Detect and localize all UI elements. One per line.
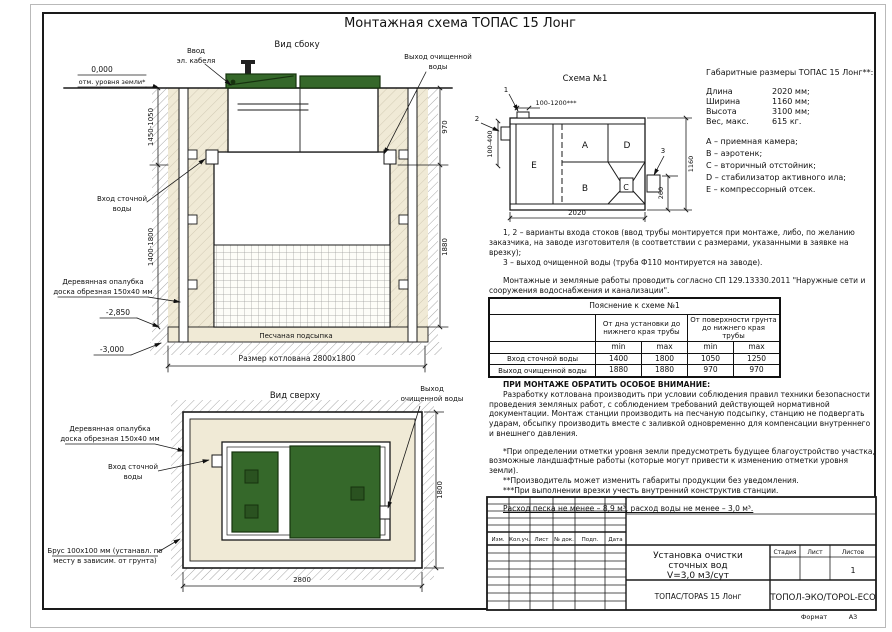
table-row: Вход сточной воды 1400 1800 1050 1250 bbox=[489, 353, 780, 365]
consumption-line: Расход песка не менее – 8,9 м³, расход в… bbox=[489, 504, 877, 514]
note-sp-standard: Монтажные и земляные работы проводить со… bbox=[489, 276, 876, 296]
row-value: 1880 bbox=[596, 365, 642, 377]
cable-entry-label: эл. кабеля bbox=[177, 57, 216, 65]
row-label: Вход сточной воды bbox=[489, 353, 596, 365]
formwork-label-top: Деревянная опалубка bbox=[69, 425, 150, 433]
spec-row: Вес, макс.615 кг. bbox=[706, 117, 874, 127]
dim-1800: 1800 bbox=[436, 481, 444, 499]
tank-neck bbox=[228, 88, 378, 152]
spec-value: 3100 мм; bbox=[772, 107, 810, 116]
tb-col-ndok: № док. bbox=[554, 537, 574, 543]
table-empty-cell bbox=[489, 315, 596, 342]
row-value: 1880 bbox=[642, 365, 688, 377]
soil-hatch-right bbox=[428, 88, 438, 342]
warning-heading: ПРИ МОНТАЖЕ ОБРАТИТЬ ОСОБОЕ ВНИМАНИЕ: bbox=[489, 380, 877, 390]
mounting-warning-block: ПРИ МОНТАЖЕ ОБРАТИТЬ ОСОБОЕ ВНИМАНИЕ: Ра… bbox=[489, 380, 877, 514]
vent-stem bbox=[245, 64, 251, 74]
table-title: Пояснение к схеме №1 bbox=[489, 298, 780, 315]
dim-100-1200: 100-1200*** bbox=[535, 99, 577, 107]
dim-1450-1050: 1450-1050 bbox=[147, 108, 155, 146]
tank-lower-blocks bbox=[214, 245, 390, 327]
inlet-label-top: Вход сточной bbox=[108, 463, 158, 471]
top-view-drawing: Вид сверху Выход очищенной воды Деревянн… bbox=[47, 385, 463, 592]
format-value: А3 bbox=[849, 613, 858, 621]
outlet-label-top: очищенной воды bbox=[401, 395, 464, 403]
legend-line: D – стабилизатор активного ила; bbox=[706, 172, 874, 184]
note-outlet: 3 – выход очищенной воды (труба Ф110 мон… bbox=[489, 258, 876, 268]
row-label: Выход очищенной воды bbox=[489, 365, 596, 377]
format-label: Формат bbox=[801, 613, 828, 621]
tb-col-izm: Изм. bbox=[492, 537, 505, 543]
model-name: ТОПАС/TOPAS 15 Лонг bbox=[654, 592, 742, 601]
callout-1: 1 bbox=[504, 86, 508, 94]
tb-col-data: Дата bbox=[608, 537, 622, 543]
side-view-label: Вид сбоку bbox=[274, 40, 319, 50]
beam-label: месту в зависим. от грунта) bbox=[53, 557, 157, 565]
spec-label: Ширина bbox=[706, 97, 772, 107]
scheme-label: Схема №1 bbox=[563, 74, 608, 84]
warning-note-2: **Производитель может изменить габариты … bbox=[489, 476, 877, 486]
table-min-header: min bbox=[596, 342, 642, 354]
spec-value: 1160 мм; bbox=[772, 97, 810, 106]
lid-top-left bbox=[232, 452, 278, 532]
warning-note-3: ***При выполнении врезки учесть внутренн… bbox=[489, 486, 877, 496]
warning-body: Разработку котлована производить при усл… bbox=[489, 390, 877, 439]
depth-mark-2850: -2,850 bbox=[106, 308, 130, 317]
outlet-pipe-stub-top bbox=[380, 506, 390, 519]
table-min-header: min bbox=[688, 342, 734, 354]
compartment-D: D bbox=[624, 141, 631, 151]
callout-3: 3 bbox=[661, 147, 665, 155]
tb-col-podp: Подп. bbox=[582, 537, 599, 543]
scheme-inlet-side bbox=[501, 127, 510, 140]
title-block: Изм. Кол.уч. Лист № док. Подп. Дата Уста… bbox=[487, 497, 876, 621]
spec-row: Ширина1160 мм; bbox=[706, 97, 874, 107]
scheme-drawing: Схема №1 1 2 3 100-1200*** 100-400 1160 … bbox=[475, 74, 695, 222]
outlet-label: воды bbox=[429, 63, 448, 71]
scheme-inlet-top bbox=[517, 112, 529, 118]
depth-mark-3000: -3,000 bbox=[100, 345, 124, 354]
doc-title: Установка очистки bbox=[653, 551, 743, 561]
explanation-table: Пояснение к схеме №1 От дна установки до… bbox=[488, 297, 781, 378]
row-value: 970 bbox=[734, 365, 781, 377]
spec-value: 615 кг. bbox=[772, 117, 801, 126]
inlet-label: Вход сточной bbox=[97, 195, 147, 203]
doc-title: V=3,0 м3/сут bbox=[667, 571, 729, 581]
row-value: 1400 bbox=[596, 353, 642, 365]
legend-line: Е – компрессорный отсек. bbox=[706, 184, 874, 196]
explanation-table-wrap: Пояснение к схеме №1 От дна установки до… bbox=[488, 297, 781, 378]
formwork-plank-left bbox=[179, 88, 188, 342]
callout-2: 2 bbox=[475, 115, 479, 123]
dimensions-spec-block: Габаритные размеры ТОПАС 15 Лонг**: Длин… bbox=[706, 68, 874, 196]
hatch-opening bbox=[245, 505, 258, 518]
spec-row: Высота3100 мм; bbox=[706, 107, 874, 117]
tb-col-list: Лист bbox=[535, 537, 550, 543]
tb-sheet-label: Лист bbox=[807, 549, 823, 556]
legend-line: А – приемная камера; bbox=[706, 136, 874, 148]
warning-note-1: *При определении отметки уровня земли пр… bbox=[489, 447, 877, 476]
dim-2800: 2800 bbox=[293, 576, 311, 584]
spec-value: 2020 мм; bbox=[772, 87, 810, 96]
inlet-pipe-stub bbox=[206, 150, 218, 164]
inlet-pipe-stub-top bbox=[212, 455, 222, 467]
spec-label: Высота bbox=[706, 107, 772, 117]
row-value: 1800 bbox=[642, 353, 688, 365]
beam-label: Брус 100х100 мм (устанавл. по bbox=[47, 547, 162, 555]
page-title: Монтажная схема ТОПАС 15 Лонг bbox=[344, 16, 576, 31]
tb-sheets-value: 1 bbox=[850, 566, 855, 575]
row-value: 1250 bbox=[734, 353, 781, 365]
inlet-label-top: воды bbox=[124, 473, 143, 481]
side-view-drawing: Вид сбоку 0,000 отм. уровня земли* Ввод … bbox=[53, 40, 471, 372]
outlet-label-top: Выход bbox=[420, 385, 444, 393]
formwork-label: доска обрезная 150х40 мм bbox=[53, 288, 152, 296]
cable-entry-label: Ввод bbox=[187, 47, 205, 55]
table-row: Выход очищенной воды 1880 1880 970 970 bbox=[489, 365, 780, 377]
company-name: ТОПОЛ-ЭКО/TOPOL-ECO bbox=[769, 593, 876, 603]
dim-1400-1800: 1400-1800 bbox=[147, 228, 155, 266]
formwork-plank-right bbox=[408, 88, 417, 342]
ground-mark: 0,000 bbox=[91, 65, 113, 74]
table-max-header: max bbox=[642, 342, 688, 354]
lid-top-right bbox=[290, 446, 380, 538]
lid-right bbox=[300, 76, 380, 88]
vent-cap bbox=[241, 60, 255, 64]
pit-size-label: Размер котлована 2800х1800 bbox=[239, 354, 356, 363]
dim-100-400: 100-400 bbox=[486, 130, 494, 157]
tb-stage-label: Стадия bbox=[773, 549, 796, 556]
dim-1880: 1880 bbox=[441, 238, 449, 256]
table-empty-cell bbox=[489, 342, 596, 354]
compartment-B: B bbox=[582, 184, 588, 194]
outlet-pipe-stub bbox=[384, 150, 396, 164]
dim-1160: 1160 bbox=[687, 156, 695, 173]
formwork-label-top: доска обрезная 150х40 мм bbox=[60, 435, 159, 443]
legend-line: В – аэротенк; bbox=[706, 148, 874, 160]
table-max-header: max bbox=[734, 342, 781, 354]
legend-line: С – вторичный отстойник; bbox=[706, 160, 874, 172]
spec-heading: Габаритные размеры ТОПАС 15 Лонг**: bbox=[706, 68, 874, 78]
outlet-label: Выход очищенной bbox=[404, 53, 472, 61]
tb-col-koluch: Кол.уч. bbox=[509, 537, 530, 543]
sand-bedding-label: Песчаная подсыпка bbox=[259, 332, 332, 340]
compartment-legend: А – приемная камера; В – аэротенк; С – в… bbox=[706, 136, 874, 196]
compartment-E: E bbox=[531, 161, 537, 171]
dim-260: 260 bbox=[657, 187, 665, 199]
row-value: 970 bbox=[688, 365, 734, 377]
ground-mark-note: отм. уровня земли* bbox=[79, 78, 147, 86]
compartment-A: A bbox=[582, 141, 589, 151]
lid-hinge bbox=[231, 80, 236, 85]
compartment-C: C bbox=[623, 183, 629, 192]
inlet-label: воды bbox=[113, 205, 132, 213]
spec-row: Длина2020 мм; bbox=[706, 87, 874, 97]
table-group-header: От дна установки до нижнего края трубы bbox=[596, 315, 688, 342]
note-inlet-variants: 1, 2 – варианты входа стоков (ввод трубы… bbox=[489, 228, 876, 258]
dim-2020: 2020 bbox=[568, 209, 586, 217]
spec-label: Длина bbox=[706, 87, 772, 97]
table-group-header: От поверхности грунта до нижнего края тр… bbox=[688, 315, 781, 342]
spec-label: Вес, макс. bbox=[706, 117, 772, 127]
row-value: 1050 bbox=[688, 353, 734, 365]
dim-970: 970 bbox=[441, 120, 449, 133]
tb-sheets-label: Листов bbox=[842, 549, 865, 556]
doc-title: сточных вод bbox=[668, 561, 727, 571]
installation-notes: 1, 2 – варианты входа стоков (ввод трубы… bbox=[489, 228, 876, 296]
hatch-opening bbox=[351, 487, 364, 500]
hatch-opening bbox=[245, 470, 258, 483]
top-view-label: Вид сверху bbox=[270, 391, 320, 401]
drawing-sheet: Монтажная схема ТОПАС 15 Лонг bbox=[0, 0, 892, 632]
formwork-label: Деревянная опалубка bbox=[62, 278, 143, 286]
